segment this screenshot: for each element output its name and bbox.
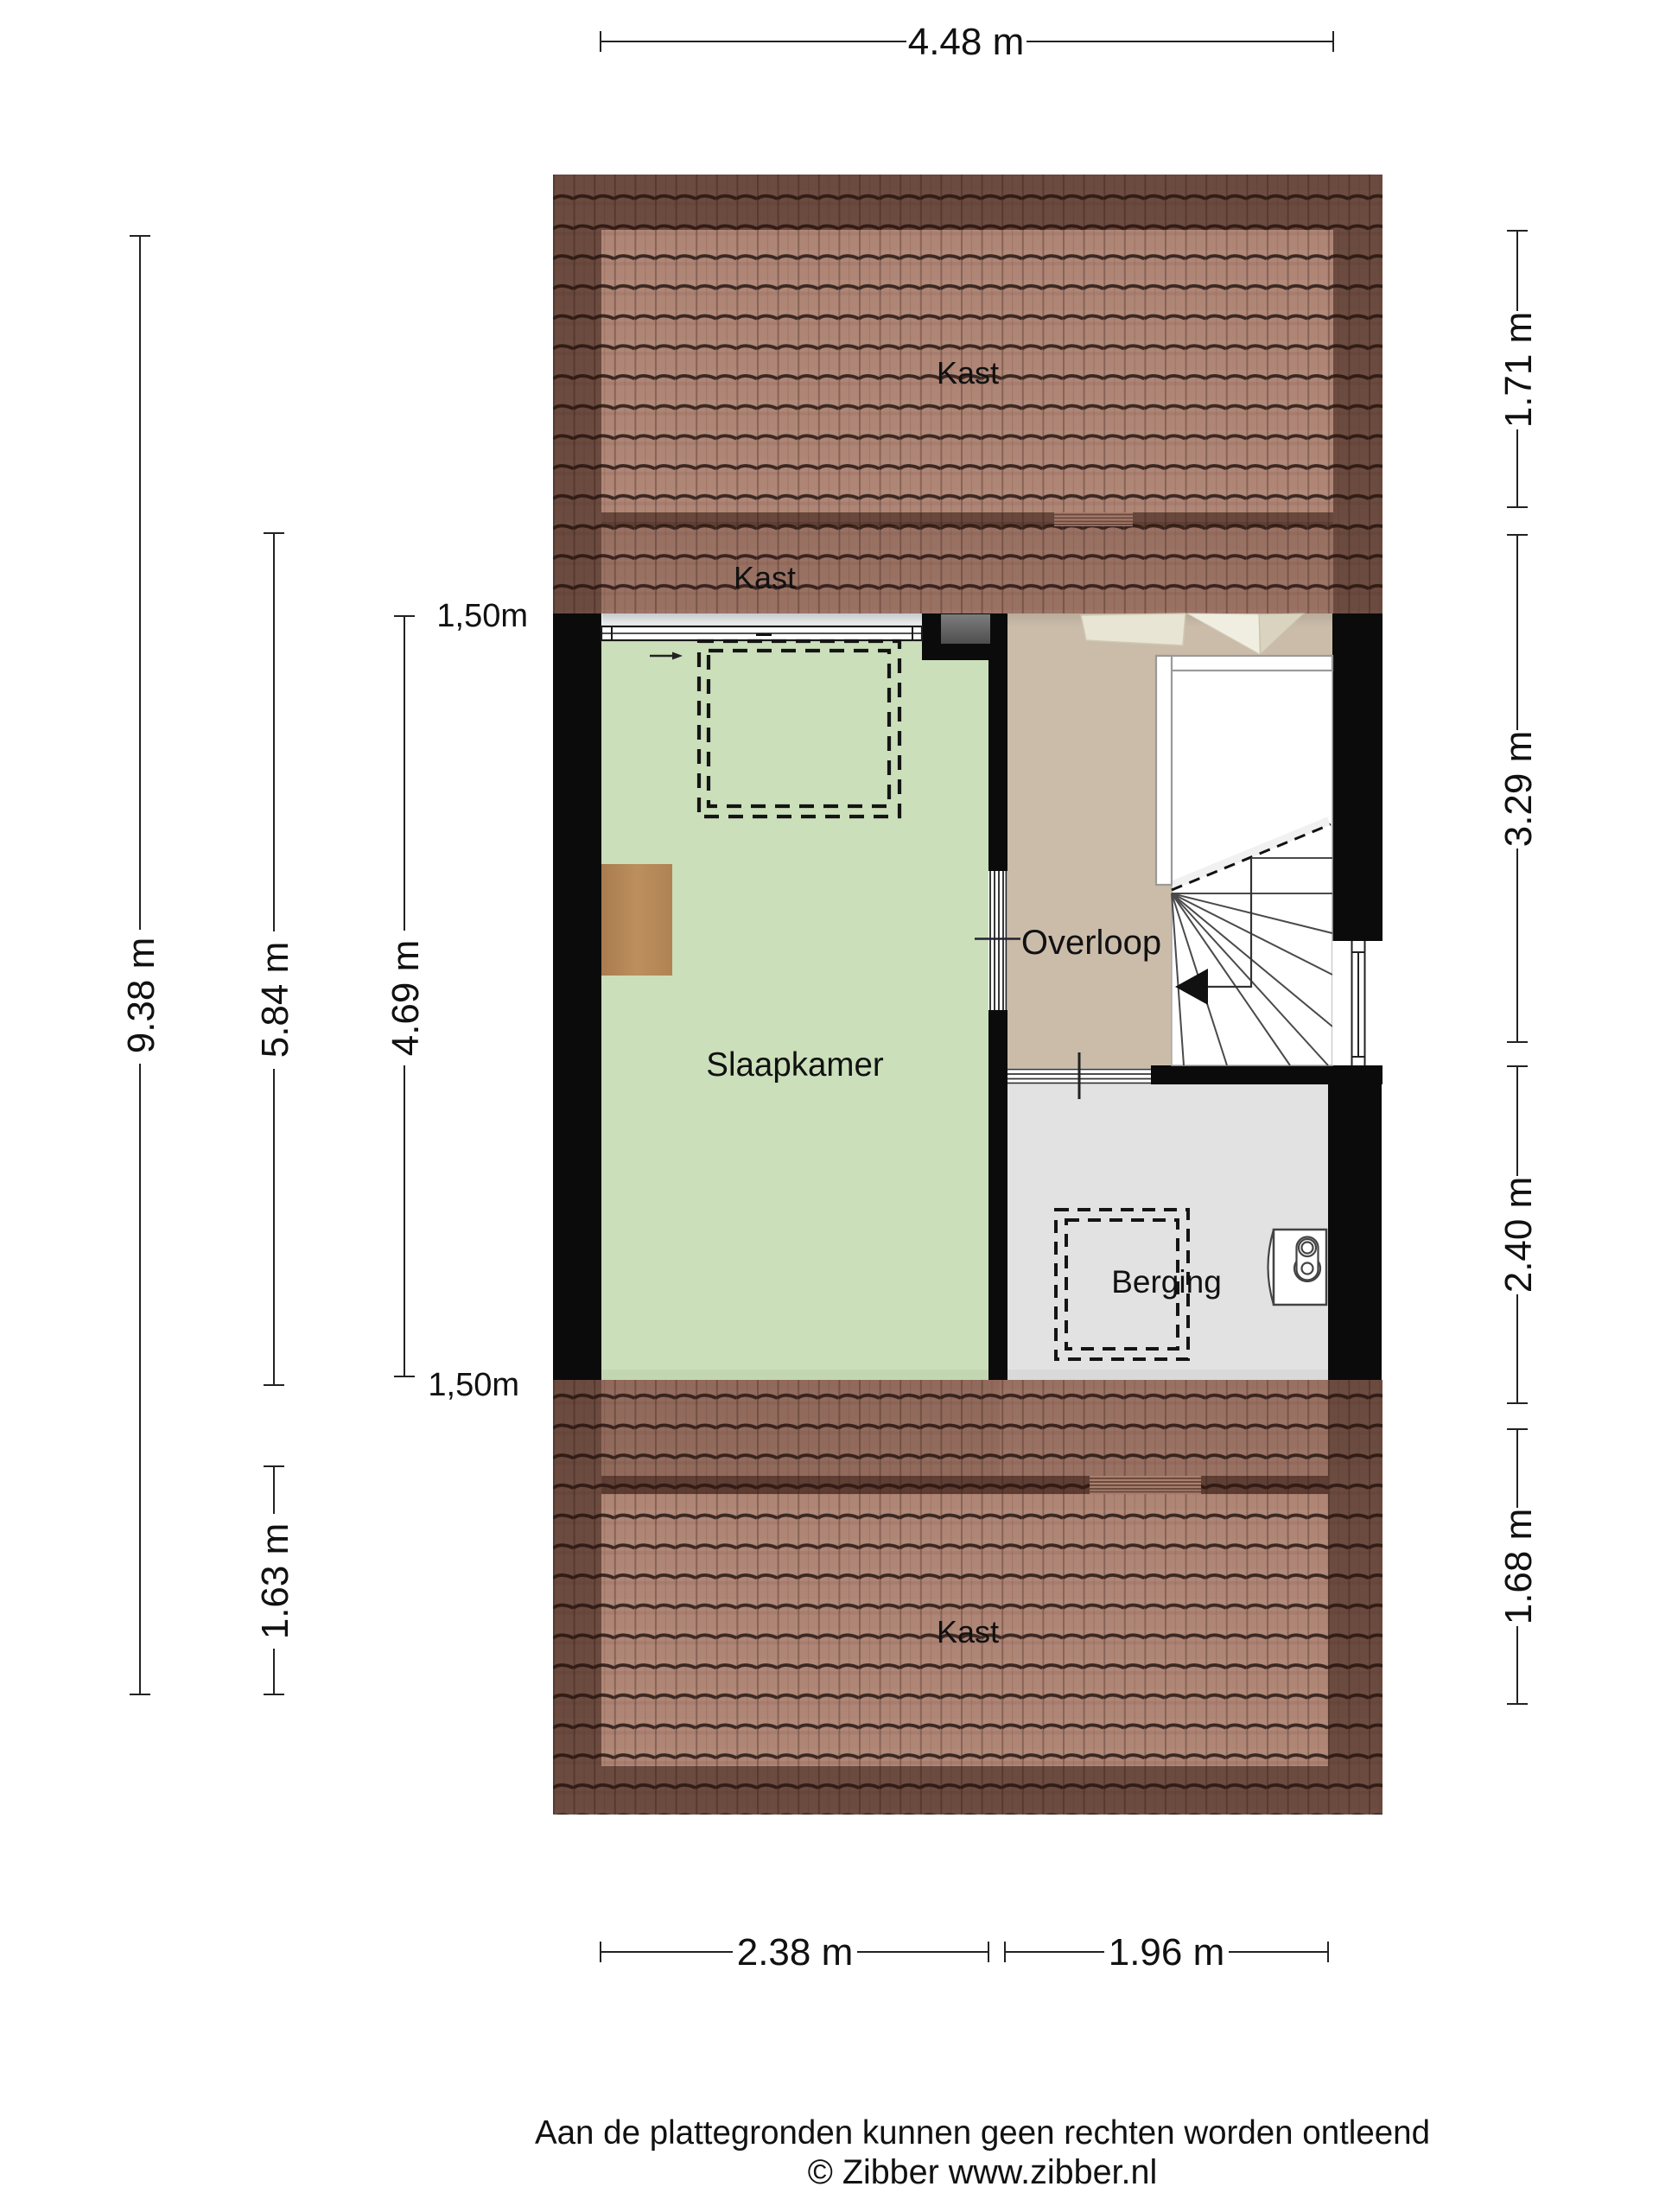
svg-text:Overloop: Overloop [1021, 924, 1161, 962]
svg-text:Kast: Kast [734, 560, 796, 595]
svg-text:5.84 m: 5.84 m [254, 942, 296, 1058]
svg-text:2.38 m: 2.38 m [737, 1931, 854, 1974]
svg-text:Berging: Berging [1111, 1264, 1222, 1300]
svg-text:Kast: Kast [937, 355, 999, 391]
svg-text:1.63 m: 1.63 m [254, 1523, 296, 1640]
svg-text:1,50m: 1,50m [428, 1367, 519, 1403]
svg-text:1,50m: 1,50m [436, 598, 528, 634]
svg-text:© Zibber www.zibber.nl: © Zibber www.zibber.nl [808, 2153, 1158, 2191]
svg-text:1.68 m: 1.68 m [1497, 1509, 1540, 1625]
svg-text:3.29 m: 3.29 m [1497, 731, 1540, 848]
svg-text:Slaapkamer: Slaapkamer [706, 1046, 884, 1084]
svg-text:Kast: Kast [937, 1614, 999, 1649]
svg-text:1.71 m: 1.71 m [1497, 312, 1540, 429]
svg-text:Aan de plattegronden kunnen ge: Aan de plattegronden kunnen geen rechten… [535, 2114, 1430, 2152]
svg-text:2.40 m: 2.40 m [1497, 1177, 1540, 1294]
svg-text:9.38 m: 9.38 m [120, 938, 162, 1054]
svg-text:4.48 m: 4.48 m [908, 21, 1025, 63]
svg-text:1.96 m: 1.96 m [1109, 1931, 1225, 1974]
svg-text:4.69 m: 4.69 m [385, 940, 427, 1057]
